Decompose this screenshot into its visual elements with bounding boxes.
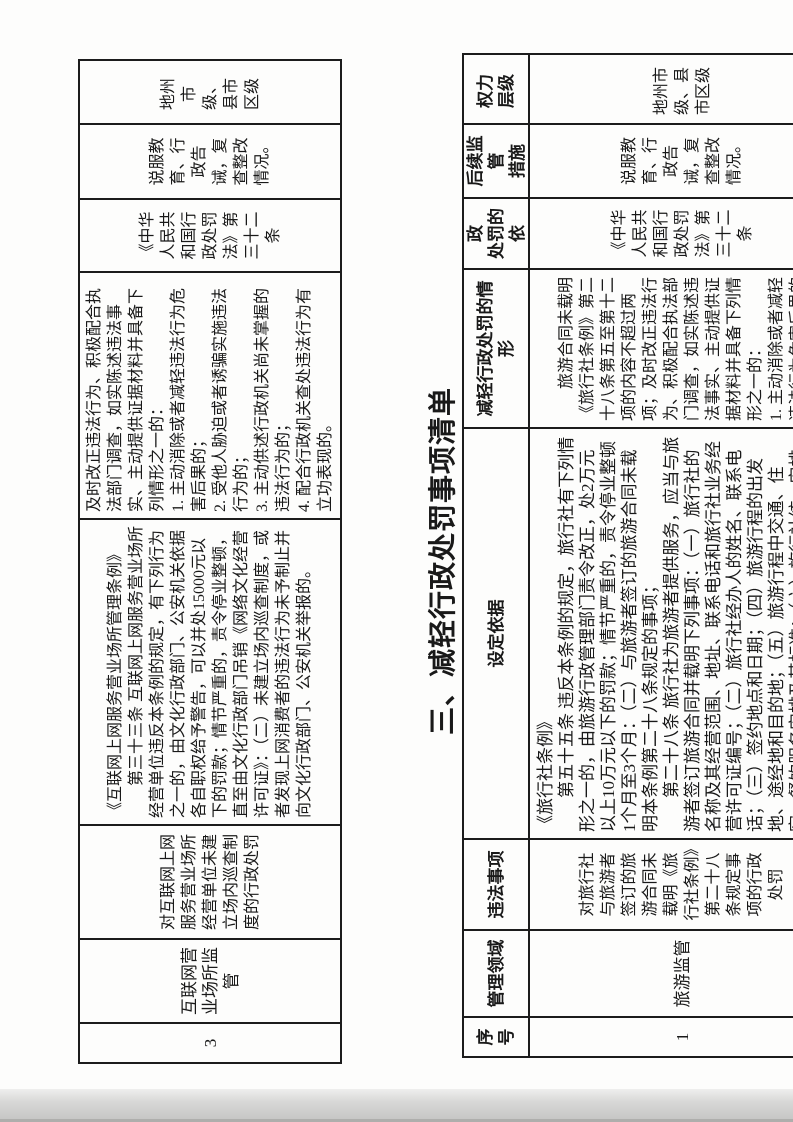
t1-cell-mitigating: 及时改正违法行为、积极配合执法部门调查，如实陈述违法事实、主动提供证据材料并具备…: [80, 271, 340, 518]
t2-cell-mitigating: 旅游合同未载明《旅行社条例》第二十八条第五至第十二项的内容不超过两项；及时改正违…: [530, 268, 793, 427]
t2-cell-num: 1: [530, 1016, 793, 1056]
t2-cell-field: 旅游监管: [530, 929, 793, 1016]
t2-header-authority-text: 权力 层级: [475, 74, 517, 108]
t2-followup-text: 说服教育、行政告诫，复查整改情况。: [619, 131, 745, 191]
t2-legal-basis-text: 《中华人民共和国行政处罚法》第三十二条: [609, 205, 756, 262]
t2-cell-legal-basis: 《中华人民共和国行政处罚法》第三十二条: [530, 197, 793, 268]
t1-cell-legal-basis: 《中华人民共和国行政处罚法》第三十二条: [80, 198, 340, 271]
t2-cell-followup: 说服教育、行政告诫，复查整改情况。: [530, 123, 793, 197]
t2-header-legal-basis: 减轻行政 处罚的依 据: [464, 197, 528, 268]
t2-item-text: 对旅行社与旅游者签订的旅游合同未载明《旅行社条例》第二十八条规定事项的行政处罚: [577, 846, 787, 923]
t1-cell-followup: 说服教育、行政告诫，复查整改情况。: [80, 123, 340, 198]
t2-field-text: 旅游监管: [672, 940, 693, 1008]
t2-num-text: 1: [672, 1033, 693, 1042]
rotated-landscape-content: 3 互联网营业场所监管 对互联网上网服务营业场所经营单位未建立场内巡查制度的行政…: [0, 0, 793, 1122]
t2-header-item: 违法事项: [464, 838, 528, 929]
t2-header-legal-basis-text: 减轻行政 处罚的依 据: [464, 205, 528, 262]
scanned-document-page: 3 互联网营业场所监管 对互联网上网服务营业场所经营单位未建立场内巡查制度的行政…: [0, 0, 793, 1122]
page-title: 三、减轻行政处罚事项清单: [421, 0, 461, 1122]
table-header-row: 序号 管理领域 违法事项 设定依据 减轻行政处罚的情形 减轻行政 处罚的依 据: [464, 55, 530, 1056]
table-continuation-row3: 3 互联网营业场所监管 对互联网上网服务营业场所经营单位未建立场内巡查制度的行政…: [78, 59, 342, 1064]
t1-authority-text: 地州市级、县市区级: [158, 71, 263, 117]
t2-header-num-text: 序号: [475, 1024, 517, 1050]
t2-authority-text: 地州市级、县市区级: [651, 65, 714, 117]
t2-header-field-text: 管理领域: [486, 940, 507, 1008]
t1-cell-basis: 《互联网上网服务营业场所管理条例》 第三十三条 互联网上网服务营业场所经营单位违…: [80, 518, 340, 824]
scan-edge-shadow: [0, 1089, 793, 1122]
t1-cell-authority: 地州市级、县市区级: [80, 65, 340, 123]
t2-header-followup-text: 后续监管 措施: [465, 131, 528, 191]
t2-header-mitigating: 减轻行政处罚的情形: [464, 268, 528, 427]
t1-cell-num: 3: [80, 1022, 340, 1062]
table-penalty-list: 序号 管理领域 违法事项 设定依据 减轻行政处罚的情形 减轻行政 处罚的依 据: [462, 53, 793, 1058]
t1-num-text: 3: [200, 1039, 221, 1048]
t2-header-item-text: 违法事项: [486, 851, 507, 919]
t2-mitigating-text: 旅游合同未载明《旅行社条例》第二十八条第五至第十二项的内容不超过两项；及时改正违…: [556, 276, 793, 421]
t1-field-text: 互联网营业场所监管: [179, 946, 242, 1016]
t1-cell-item: 对互联网上网服务营业场所经营单位未建立场内巡查制度的行政处罚: [80, 824, 340, 938]
t2-header-field: 管理领域: [464, 929, 528, 1016]
t1-legal-basis-text: 《中华人民共和国行政处罚法》第三十二条: [137, 206, 284, 265]
t1-cell-field: 互联网营业场所监管: [80, 938, 340, 1022]
t1-followup-text: 说服教育、行政告诫，复查整改情况。: [147, 131, 273, 192]
t2-header-num: 序号: [464, 1016, 528, 1056]
t1-mitigating-text: 及时改正违法行为、积极配合执法部门调查，如实陈述违法事实、主动提供证据材料并具备…: [84, 279, 336, 512]
t2-header-authority: 权力 层级: [464, 59, 528, 123]
t2-header-basis: 设定依据: [464, 427, 528, 838]
t2-cell-authority: 地州市级、县市区级: [530, 59, 793, 123]
t2-header-basis-text: 设定依据: [486, 600, 507, 668]
t2-header-mitigating-text: 减轻行政处罚的情形: [475, 276, 517, 421]
t1-item-text: 对互联网上网服务营业场所经营单位未建立场内巡查制度的行政处罚: [158, 832, 263, 932]
t2-cell-item: 对旅行社与旅游者签订的旅游合同未载明《旅行社条例》第二十八条规定事项的行政处罚: [530, 838, 793, 929]
table-row: 1 旅游监管 对旅行社与旅游者签订的旅游合同未载明《旅行社条例》第二十八条规定事…: [530, 55, 793, 1056]
t2-cell-basis: 《旅行社条例》 第五十五条 违反本条例的规定，旅行社有下列情形之一的，由旅游行政…: [530, 427, 793, 838]
t2-header-followup: 后续监管 措施: [464, 123, 528, 197]
t2-basis-text: 《旅行社条例》 第五十五条 违反本条例的规定，旅行社有下列情形之一的，由旅游行政…: [535, 435, 793, 832]
t1-basis-text: 《互联网上网服务营业场所管理条例》 第三十三条 互联网上网服务营业场所经营单位违…: [105, 526, 315, 818]
